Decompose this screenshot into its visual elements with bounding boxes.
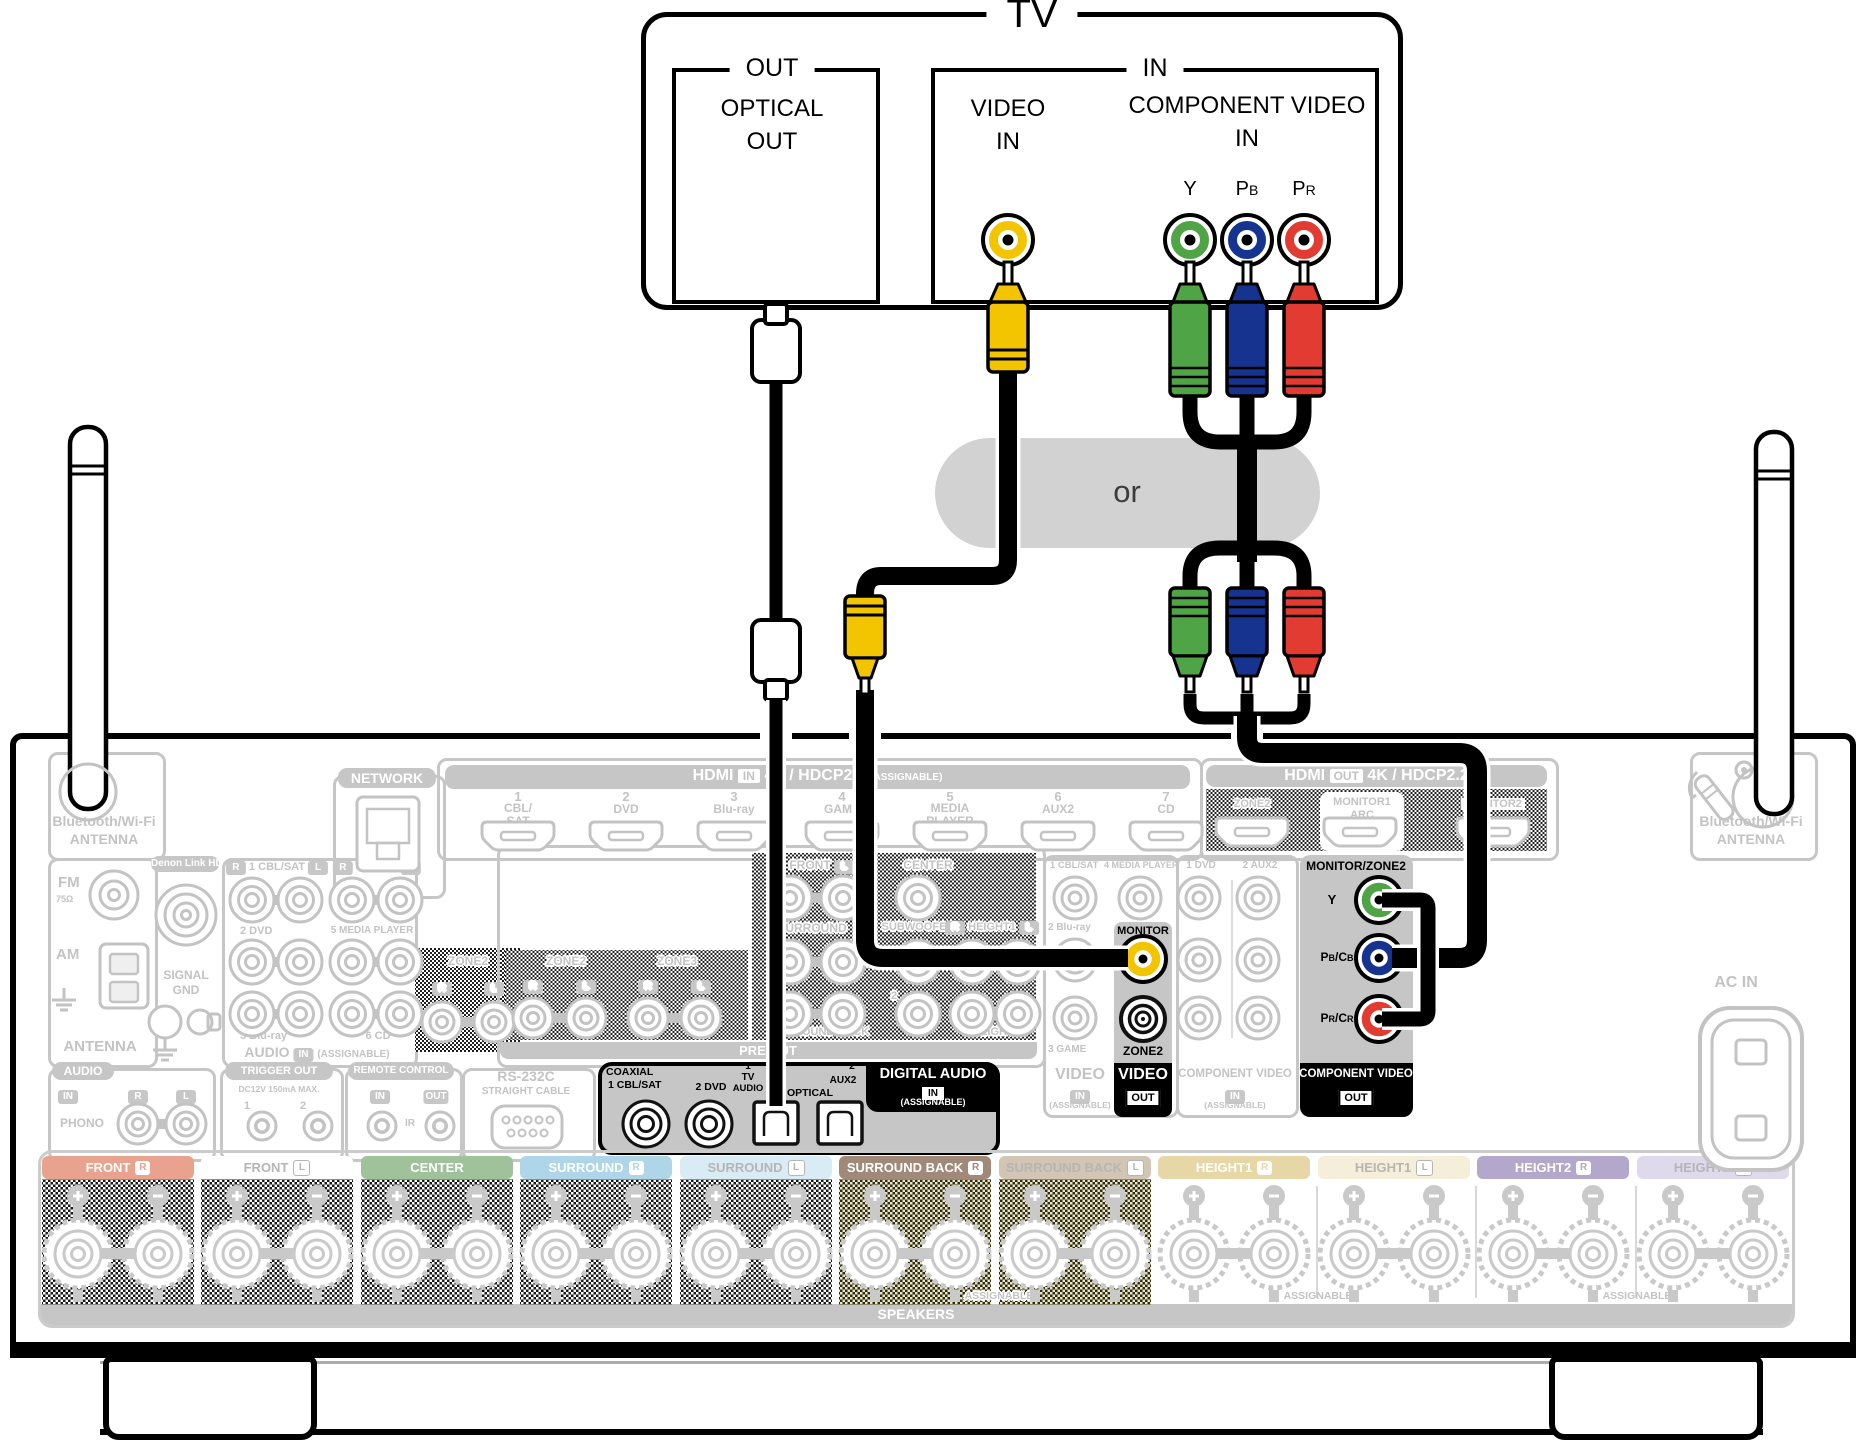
connection-diagram: TV OUT OPTICALOUT IN VIDEOIN COMPONENT V… [0,0,1866,1443]
diagram-decor [0,0,1866,1443]
